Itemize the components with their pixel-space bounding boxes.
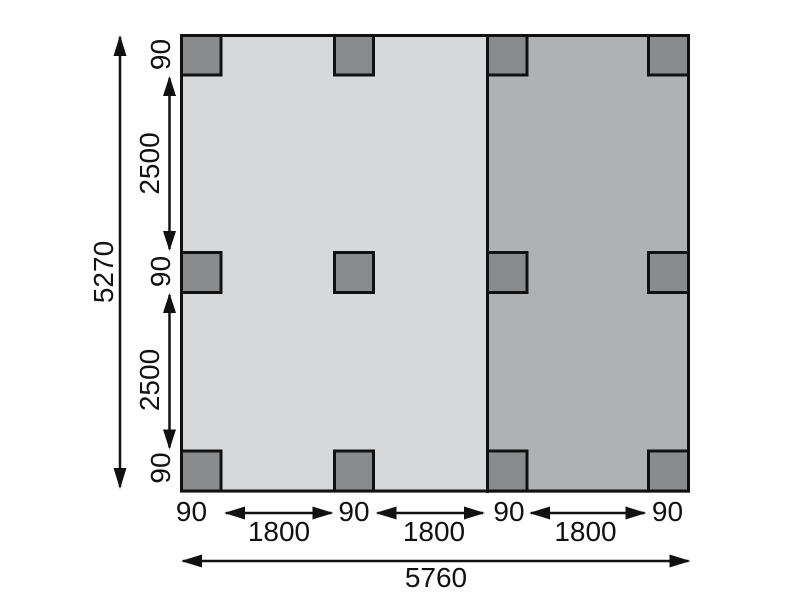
- svg-text:90: 90: [493, 496, 524, 527]
- svg-text:1800: 1800: [554, 516, 616, 547]
- svg-text:2500: 2500: [134, 349, 165, 411]
- svg-text:1800: 1800: [248, 516, 310, 547]
- svg-text:2500: 2500: [134, 132, 165, 194]
- svg-text:5760: 5760: [405, 562, 467, 593]
- svg-text:90: 90: [145, 39, 176, 70]
- svg-text:5270: 5270: [88, 241, 119, 303]
- svg-text:90: 90: [338, 496, 369, 527]
- svg-text:90: 90: [145, 452, 176, 483]
- svg-text:90: 90: [652, 496, 683, 527]
- svg-text:1800: 1800: [403, 516, 465, 547]
- svg-text:90: 90: [145, 256, 176, 287]
- svg-text:90: 90: [176, 496, 207, 527]
